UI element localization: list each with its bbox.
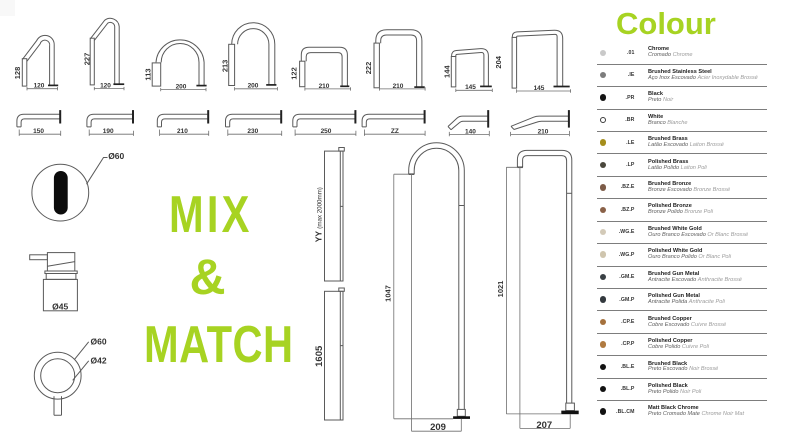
svg-text:120: 120: [100, 83, 111, 90]
svg-text:120: 120: [34, 83, 45, 90]
svg-text:YY (max 2000mm): YY (max 2000mm): [314, 187, 324, 242]
svg-text:Ø42: Ø42: [91, 356, 107, 366]
svg-text:200: 200: [176, 84, 187, 91]
svg-text:210: 210: [319, 83, 330, 90]
svg-text:122: 122: [290, 67, 299, 80]
svg-text:209: 209: [430, 422, 446, 433]
svg-text:144: 144: [443, 65, 452, 78]
svg-text:Ø45: Ø45: [52, 302, 68, 312]
svg-text:213: 213: [220, 60, 229, 73]
svg-text:145: 145: [465, 84, 476, 91]
svg-text:210: 210: [177, 128, 188, 135]
svg-text:210: 210: [393, 83, 404, 90]
svg-text:207: 207: [536, 420, 552, 431]
svg-text:140: 140: [465, 128, 476, 135]
svg-text:200: 200: [248, 83, 259, 90]
svg-text:210: 210: [538, 128, 549, 135]
svg-text:250: 250: [321, 128, 332, 135]
svg-text:1047: 1047: [384, 285, 393, 302]
svg-text:113: 113: [143, 68, 152, 80]
svg-text:Ø60: Ø60: [91, 336, 107, 346]
svg-text:150: 150: [33, 128, 44, 135]
svg-text:1605: 1605: [314, 345, 325, 367]
svg-text:128: 128: [13, 67, 22, 80]
svg-text:145: 145: [534, 85, 545, 92]
svg-text:230: 230: [247, 128, 258, 135]
svg-text:1021: 1021: [496, 281, 505, 298]
svg-text:190: 190: [103, 128, 114, 135]
svg-text:Ø60: Ø60: [108, 151, 124, 161]
svg-text:204: 204: [494, 55, 503, 68]
svg-text:227: 227: [83, 53, 92, 66]
svg-text:ZZ: ZZ: [391, 128, 399, 135]
svg-text:222: 222: [364, 62, 373, 75]
